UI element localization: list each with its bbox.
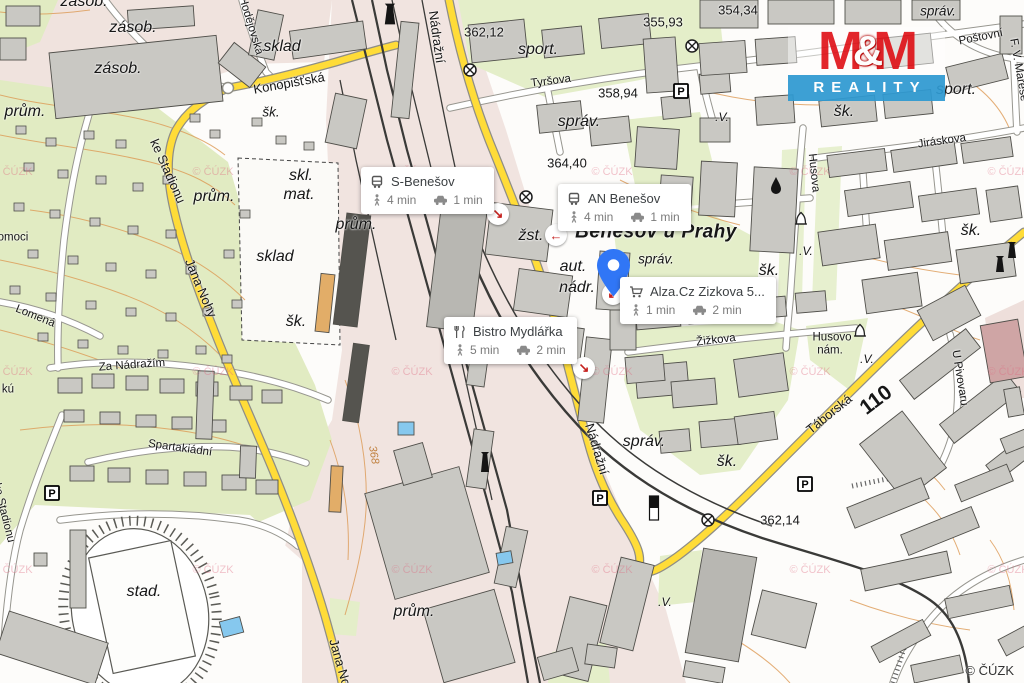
walk-icon xyxy=(455,344,465,357)
map-canvas[interactable]: P P P P © ČÚZK© ČÚZK© ČÚZK© ČÚZK© ČÚZK© … xyxy=(0,0,1024,683)
chapel-icon xyxy=(520,191,532,203)
svg-text:P: P xyxy=(801,479,808,491)
walk-time: 4 min xyxy=(584,210,613,224)
shopping-cart-icon xyxy=(629,285,643,299)
restaurant-icon xyxy=(453,325,466,339)
drive-time: 1 min xyxy=(453,193,482,207)
road-junction-dot xyxy=(223,83,234,94)
walk-time: 1 min xyxy=(646,303,675,317)
drive-time: 2 min xyxy=(536,343,565,357)
callout-alza[interactable]: Alza.Cz Zizkova 5... 1 min 2 min xyxy=(620,277,776,324)
drive-time: 2 min xyxy=(712,303,741,317)
chapel-icon xyxy=(702,514,714,526)
svg-text:P: P xyxy=(48,488,55,500)
svg-text:P: P xyxy=(677,86,684,98)
callout-an-benesov[interactable]: AN Benešov 4 min 1 min xyxy=(558,184,691,231)
parking-icon: P xyxy=(593,491,607,505)
car-icon xyxy=(630,211,645,223)
walk-time: 4 min xyxy=(387,193,416,207)
drive-time: 1 min xyxy=(650,210,679,224)
map-attribution: © ČÚZK xyxy=(965,663,1014,678)
walk-icon xyxy=(569,211,579,224)
parking-icon: P xyxy=(674,84,688,98)
svg-text:P: P xyxy=(596,493,603,505)
callout-title: Alza.Cz Zizkova 5... xyxy=(650,284,765,299)
walk-icon xyxy=(372,194,382,207)
walk-icon xyxy=(631,304,641,317)
bus-icon xyxy=(567,192,581,206)
car-icon xyxy=(516,344,531,356)
callout-bistro-mydlarka[interactable]: Bistro Mydlářka 5 min 2 min xyxy=(444,317,577,364)
callout-title: S-Benešov xyxy=(391,174,455,189)
car-icon xyxy=(433,194,448,206)
parking-icon: P xyxy=(45,486,59,500)
chapel-icon xyxy=(464,64,476,76)
car-icon xyxy=(692,304,707,316)
mm-reality-logo[interactable]: M&M REALITY xyxy=(788,27,945,101)
walk-time: 5 min xyxy=(470,343,499,357)
callout-s-benesov[interactable]: S-Benešov 4 min 1 min xyxy=(361,167,494,214)
logo-mm-text: M&M xyxy=(788,27,945,75)
logo-reality-text: REALITY xyxy=(788,75,945,101)
parking-icon: P xyxy=(798,477,812,491)
chapel-icon xyxy=(686,40,698,52)
callout-title: Bistro Mydlářka xyxy=(473,324,563,339)
callout-title: AN Benešov xyxy=(588,191,660,206)
bw-chimney-icon xyxy=(650,496,659,520)
bus-icon xyxy=(370,175,384,189)
